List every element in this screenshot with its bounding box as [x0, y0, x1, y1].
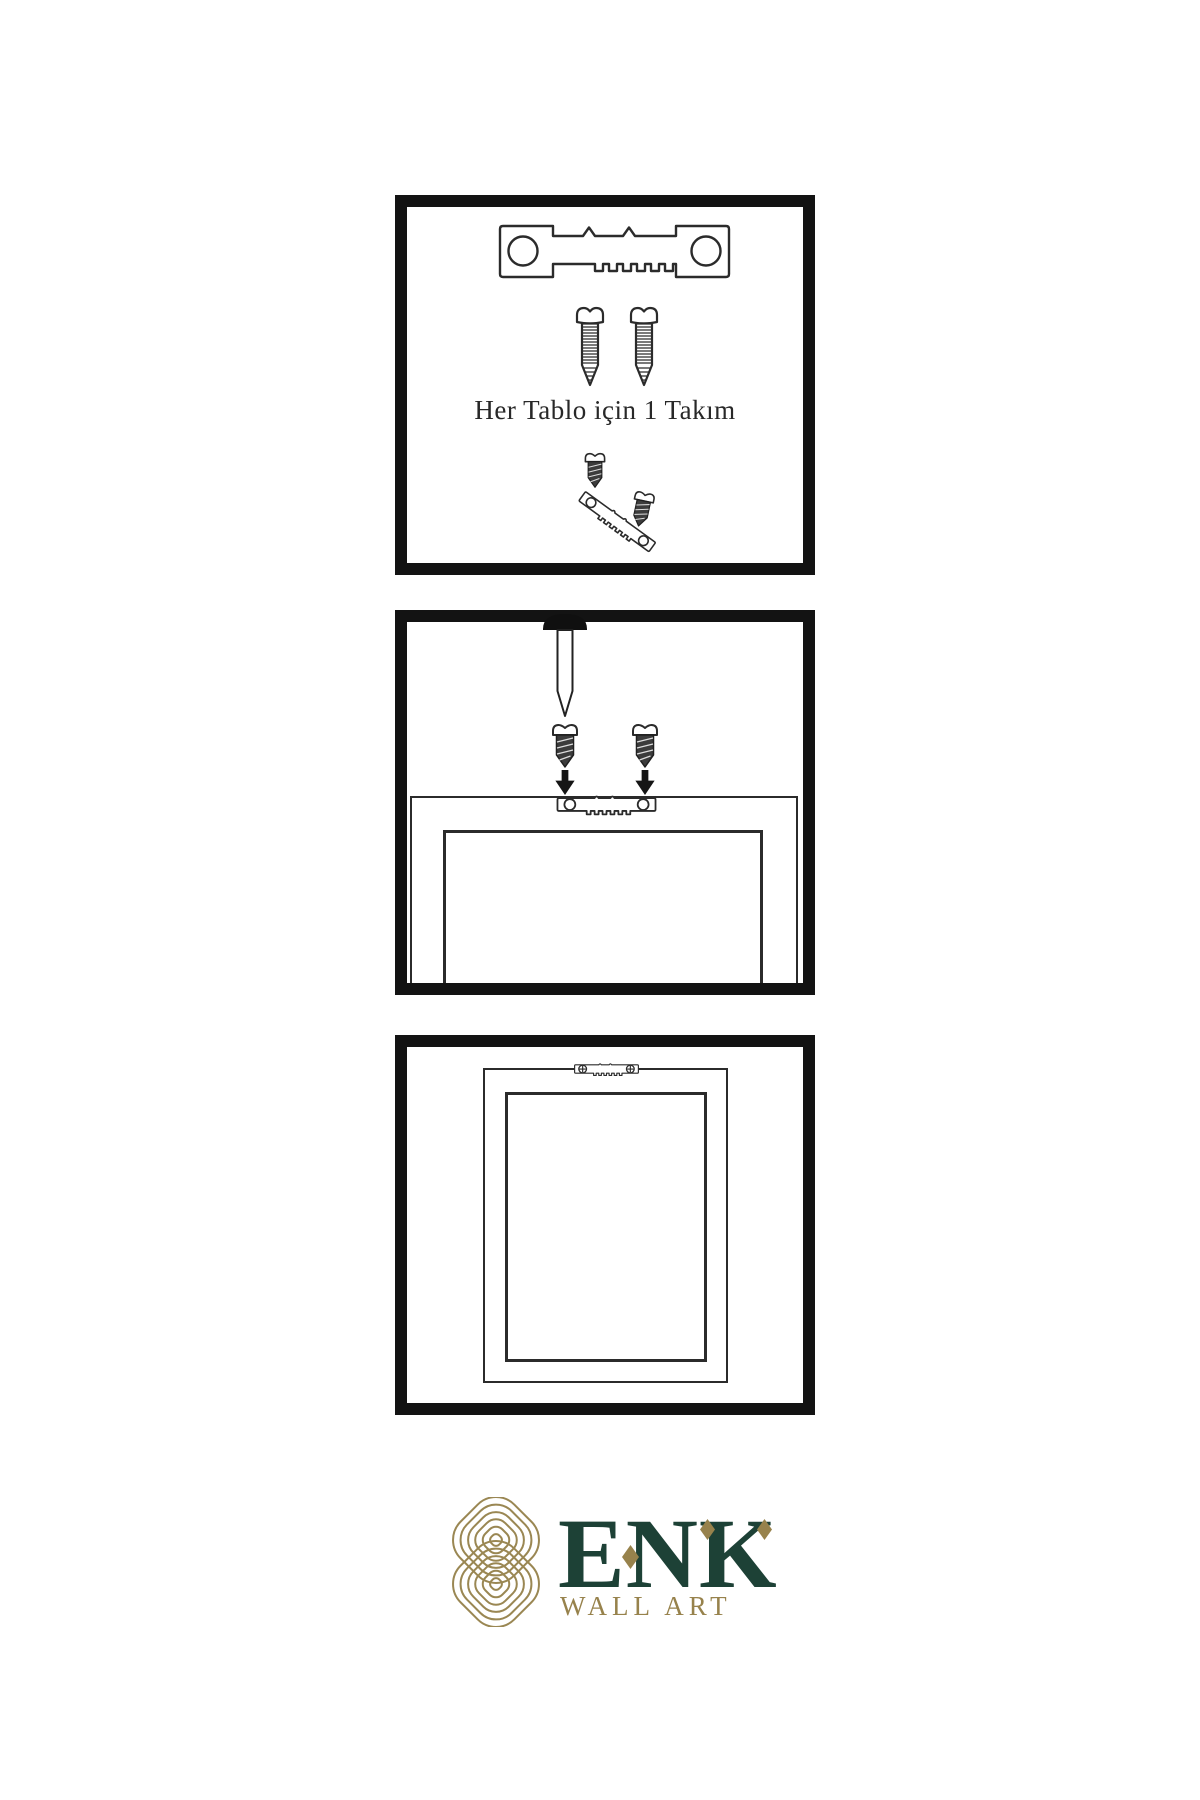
brand-name: ENK — [558, 1504, 778, 1604]
panel-hardware-kit: Her Tablo için 1 Takım — [395, 195, 815, 575]
frame-back-inner-outline — [443, 830, 763, 983]
panel-hung-frame — [395, 1035, 815, 1415]
arrow-down-icon — [635, 770, 655, 795]
dark-screw-icon — [626, 489, 657, 530]
sawtooth-hanger-icon — [555, 794, 658, 818]
frame-mat-outline — [505, 1092, 707, 1362]
sawtooth-hanger-icon — [497, 223, 732, 280]
dark-screw-icon — [583, 452, 607, 489]
kit-caption: Her Tablo için 1 Takım — [407, 395, 803, 426]
arrow-down-icon — [555, 770, 575, 795]
screw-icon — [627, 305, 661, 389]
panel-wall-mount — [395, 610, 815, 995]
brand-subtitle: WALL ART — [560, 1593, 732, 1620]
sawtooth-hanger-screwed-icon — [573, 1060, 640, 1080]
dark-screw-icon — [550, 723, 580, 769]
dark-screw-icon — [630, 723, 660, 769]
screw-icon — [573, 305, 607, 389]
knot-logo-icon — [435, 1497, 557, 1627]
instruction-sheet: Her Tablo için 1 Takım ENK WALL ART — [0, 0, 1200, 1800]
nail-icon — [542, 613, 588, 721]
